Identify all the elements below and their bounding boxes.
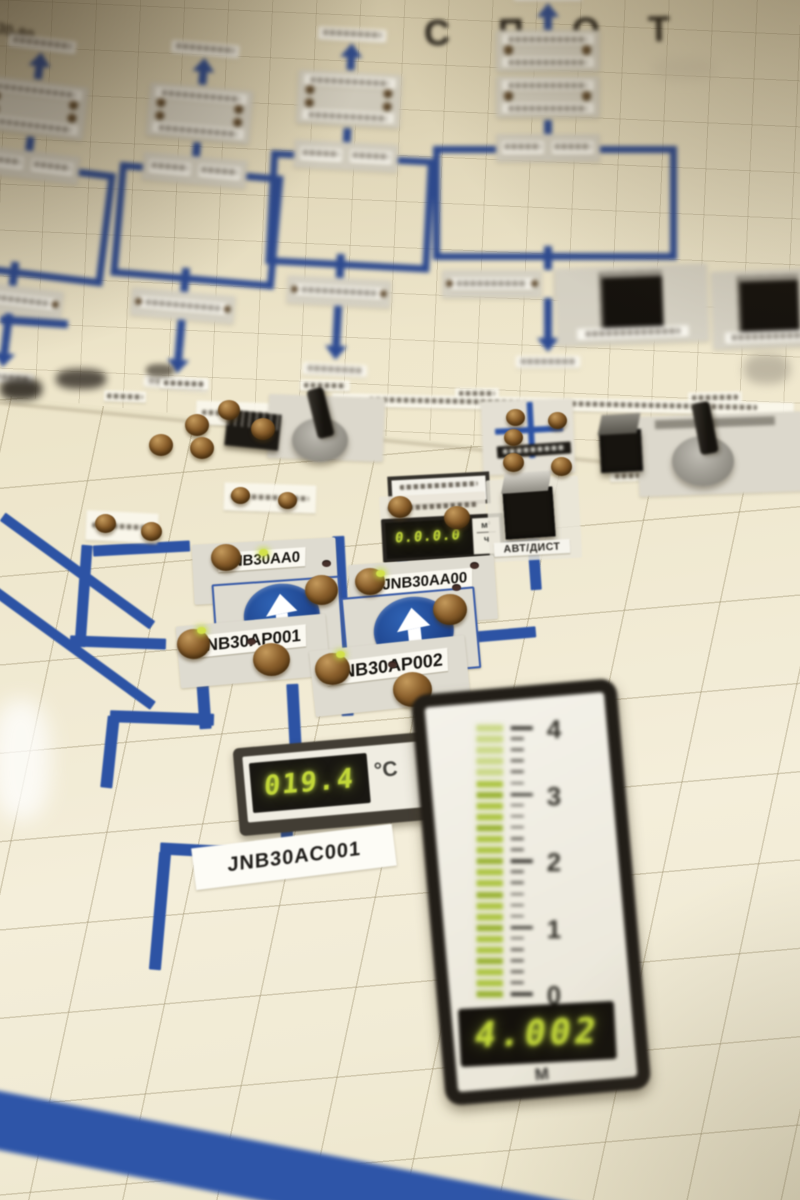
temperature-group: 019.4 °C JNB30AC001 bbox=[0, 0, 800, 1200]
level-scale: 4 3 2 1 0 bbox=[477, 726, 597, 1006]
scale-number: 3 bbox=[547, 781, 561, 812]
level-bar-segment bbox=[477, 969, 503, 975]
scale-tick bbox=[511, 948, 524, 951]
scale-tick bbox=[511, 937, 524, 940]
scale-tick bbox=[511, 837, 524, 840]
level-bar-segment bbox=[477, 903, 503, 909]
level-bar-segment bbox=[477, 836, 503, 842]
level-bar-segment bbox=[477, 869, 503, 875]
scale-tick bbox=[511, 993, 533, 997]
level-bar-segment bbox=[477, 914, 503, 920]
scale-number: 1 bbox=[547, 914, 561, 945]
level-indicator: 4 3 2 1 0 4.002 М bbox=[410, 678, 651, 1106]
temperature-unit: °C bbox=[373, 757, 399, 783]
scale-tick bbox=[511, 970, 524, 973]
level-bar-segment bbox=[477, 925, 503, 931]
level-bar-segment bbox=[477, 825, 503, 831]
scale-tick bbox=[511, 870, 524, 873]
level-bar-segment bbox=[477, 847, 503, 853]
level-bar-segment bbox=[477, 781, 503, 787]
temperature-display: 019.4 °C bbox=[233, 732, 434, 837]
level-bar-segment bbox=[477, 736, 503, 742]
scale-tick bbox=[511, 882, 524, 885]
scale-tick bbox=[511, 904, 524, 907]
level-lcd: 4.002 bbox=[458, 1001, 617, 1067]
scale-tick bbox=[511, 771, 524, 774]
scale-tick bbox=[511, 726, 533, 730]
scale-tick bbox=[511, 748, 524, 751]
scale-tick bbox=[511, 893, 524, 896]
level-bar-segment bbox=[477, 758, 503, 764]
level-bar-segment bbox=[477, 992, 503, 998]
level-bar-segment bbox=[477, 792, 503, 798]
level-bar-segment bbox=[477, 770, 503, 776]
scale-tick bbox=[511, 804, 524, 807]
scale-number: 4 bbox=[547, 714, 561, 745]
scale-tick bbox=[511, 793, 533, 797]
level-bar-segment bbox=[477, 936, 503, 942]
level-bar-segment bbox=[477, 892, 503, 898]
scale-number: 2 bbox=[547, 847, 561, 878]
scale-tick bbox=[511, 959, 524, 962]
control-panel-photo: С П О Т 30-80 bbox=[0, 0, 800, 1200]
pipe-tag: JNB30AC001 bbox=[191, 824, 397, 890]
scale-tick bbox=[511, 848, 524, 851]
scale-tick bbox=[511, 915, 524, 918]
level-bar-segment bbox=[477, 814, 503, 820]
level-indicator-face: 4 3 2 1 0 4.002 М bbox=[425, 692, 638, 1092]
level-bar-segment bbox=[477, 881, 503, 887]
scale-tick bbox=[511, 859, 533, 863]
scale-tick bbox=[511, 815, 524, 818]
scale-tick bbox=[511, 759, 524, 762]
level-bar-segment bbox=[477, 858, 503, 864]
level-bar-segment bbox=[477, 725, 503, 731]
level-bar-segment bbox=[477, 803, 503, 809]
level-bar-segment bbox=[477, 747, 503, 753]
level-bar-segment bbox=[477, 958, 503, 964]
scale-tick bbox=[511, 737, 524, 740]
scale-tick bbox=[511, 981, 524, 984]
temperature-lcd: 019.4 bbox=[249, 753, 371, 813]
scale-tick bbox=[511, 926, 533, 930]
level-bar-segment bbox=[477, 980, 503, 986]
level-bar-segment bbox=[477, 947, 503, 953]
scale-tick bbox=[511, 782, 524, 785]
scale-tick bbox=[511, 826, 524, 829]
temperature-display-face: 019.4 °C bbox=[242, 741, 423, 822]
